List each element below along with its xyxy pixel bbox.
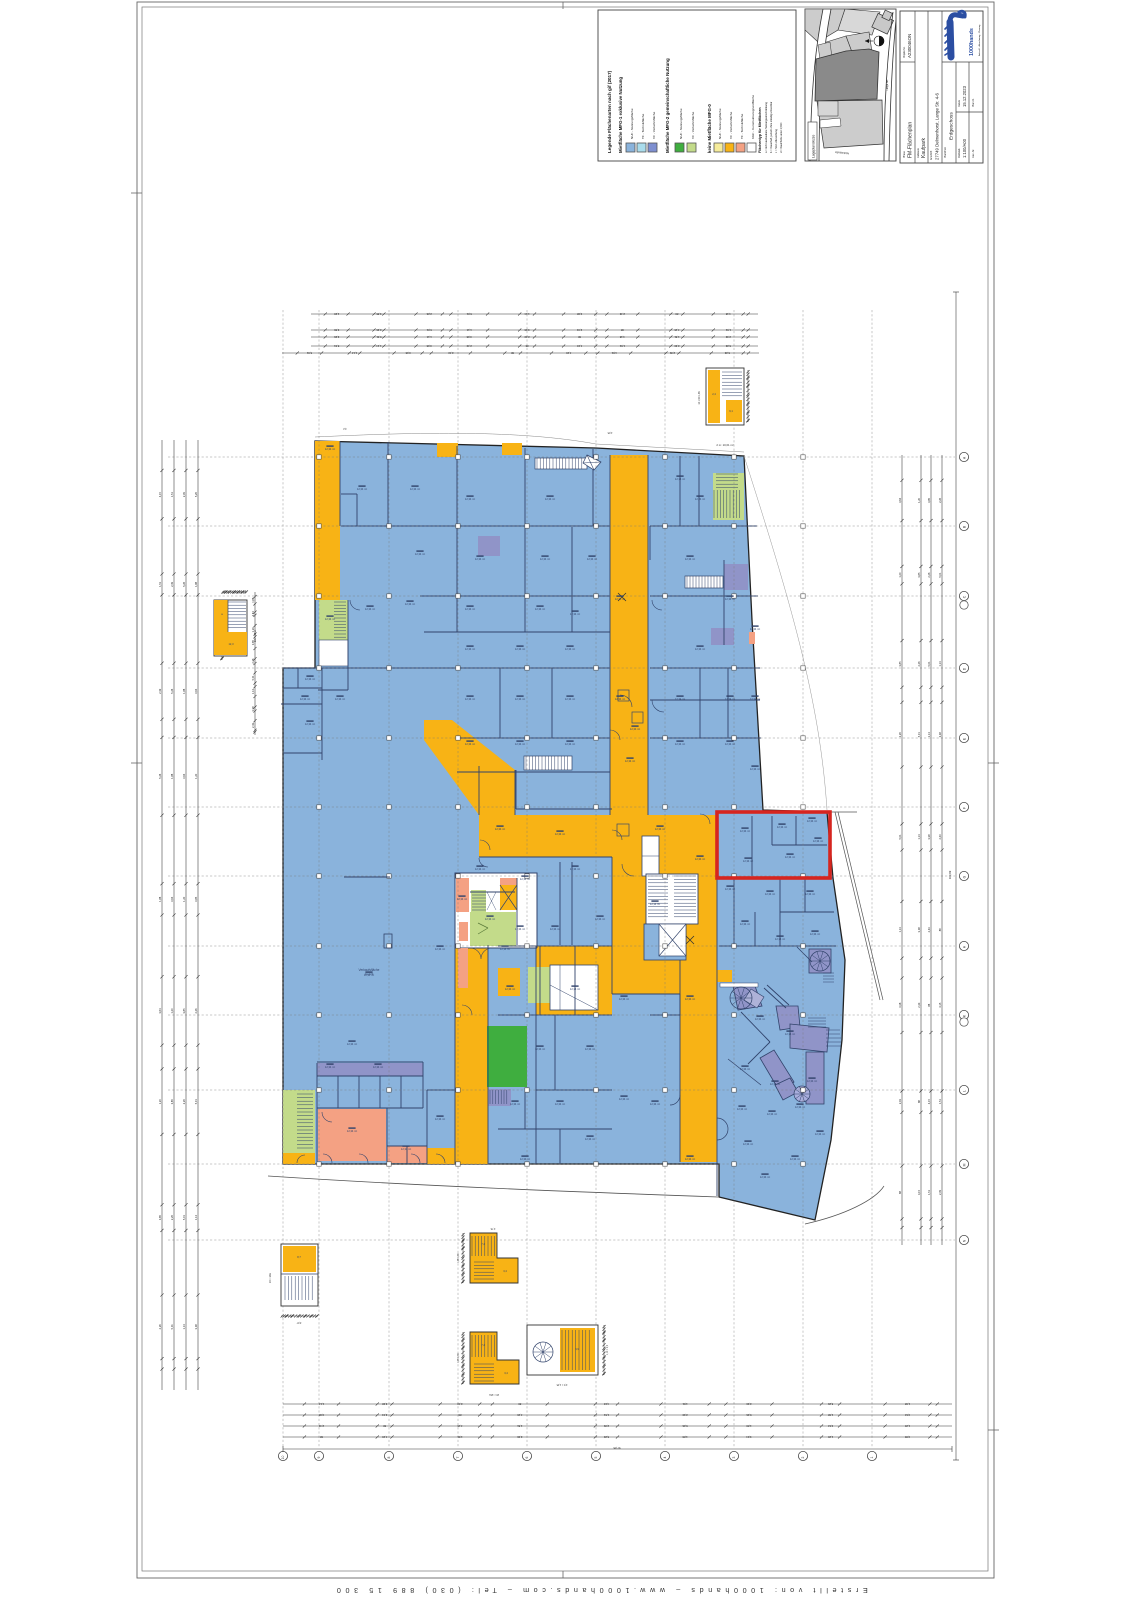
svg-text:9,1: 9,1 — [729, 409, 733, 413]
svg-text:12,34 m²: 12,34 m² — [743, 1142, 753, 1146]
svg-text:15.12.2023: 15.12.2023 — [962, 85, 967, 107]
svg-text:12,34 m²: 12,34 m² — [500, 947, 510, 951]
svg-text:1,20: 1,20 — [828, 1435, 834, 1439]
svg-text:12,34 m²: 12,34 m² — [300, 697, 310, 701]
svg-text:12,34 m²: 12,34 m² — [777, 825, 787, 829]
svg-text:3,64: 3,64 — [158, 1008, 162, 1014]
svg-text:3,38: 3,38 — [927, 834, 931, 840]
svg-text:2,43: 2,43 — [466, 344, 472, 348]
svg-text:3,64: 3,64 — [904, 1413, 910, 1417]
svg-text:4,15: 4,15 — [566, 351, 572, 355]
svg-text:2,26: 2,26 — [898, 732, 902, 738]
svg-text:5,01: 5,01 — [898, 834, 902, 840]
svg-text:12,34 m²: 12,34 m² — [405, 602, 415, 606]
svg-text:Mietfläche MFG-2 gemeinschaftl: Mietfläche MFG-2 gemeinschaftliche Nutzu… — [665, 58, 670, 153]
svg-text:2,26: 2,26 — [170, 1215, 174, 1221]
svg-text:3,38: 3,38 — [194, 1324, 198, 1330]
svg-text:5,26: 5,26 — [725, 344, 731, 348]
svg-text:7: 7 — [456, 1456, 460, 1458]
svg-text:12,34 m²: 12,34 m² — [760, 1175, 770, 1179]
svg-text:1,20: 1,20 — [917, 497, 921, 503]
svg-text:12,34 m²: 12,34 m² — [485, 917, 495, 921]
svg-text:4,15: 4,15 — [457, 1424, 463, 1428]
svg-text:2,43: 2,43 — [251, 722, 255, 728]
svg-text:12,34 m²: 12,34 m² — [415, 552, 425, 556]
svg-text:1,20: 1,20 — [194, 773, 198, 779]
svg-text:12,34 m²: 12,34 m² — [685, 557, 695, 561]
svg-text:3,38: 3,38 — [577, 312, 583, 316]
svg-text:9,9: 9,9 — [575, 1347, 579, 1351]
svg-text:b = Dauerhaft, jedoch ohne stä: b = Dauerhaft, jedoch ohne ständig umset… — [770, 101, 773, 153]
svg-text:12,34 m²: 12,34 m² — [535, 607, 545, 611]
svg-text:8,7: 8,7 — [297, 1255, 301, 1259]
svg-text:1,88: 1,88 — [158, 896, 162, 902]
svg-text:12,34 m²: 12,34 m² — [740, 829, 750, 833]
svg-text:12,34 m²: 12,34 m² — [625, 759, 635, 763]
svg-text:1,51: 1,51 — [938, 1099, 942, 1105]
svg-text:4,05: 4,05 — [607, 431, 612, 434]
svg-text:3,85: 3,85 — [158, 1215, 162, 1221]
svg-text:12,34 m²: 12,34 m² — [775, 937, 785, 941]
svg-text:12,34 m²: 12,34 m² — [305, 722, 315, 726]
svg-text:12,34 m²: 12,34 m² — [520, 1157, 530, 1161]
svg-text:2,43: 2,43 — [917, 1002, 921, 1008]
svg-text:4,15: 4,15 — [674, 328, 680, 332]
svg-text:12,34 m²: 12,34 m² — [770, 1082, 780, 1086]
svg-text:5,01: 5,01 — [334, 344, 340, 348]
svg-text:12,34 m²: 12,34 m² — [457, 897, 467, 901]
svg-text:VF - Verkehrsfläche: VF - Verkehrsfläche — [729, 112, 733, 139]
svg-text:2,26: 2,26 — [917, 661, 921, 667]
svg-text:F: F — [963, 807, 967, 809]
svg-text:12,34 m²: 12,34 m² — [615, 597, 625, 601]
svg-text:3,64: 3,64 — [251, 611, 255, 617]
svg-text:4,15: 4,15 — [917, 1189, 921, 1195]
svg-text:Anschrift: Anschrift — [930, 150, 933, 160]
svg-text:12,34 m²: 12,34 m² — [510, 1102, 520, 1106]
svg-text:12,34 m²: 12,34 m² — [515, 647, 525, 651]
svg-text:1,51: 1,51 — [517, 1424, 523, 1428]
svg-text:2,39: 2,39 — [674, 344, 680, 348]
svg-text:1,51: 1,51 — [619, 344, 625, 348]
svg-text:M: M — [963, 1163, 967, 1166]
svg-text:5,01: 5,01 — [426, 328, 432, 332]
svg-text:3: 3 — [732, 1456, 736, 1458]
svg-text:3,85: 3,85 — [904, 1435, 910, 1439]
svg-text:A230046ON: A230046ON — [907, 34, 912, 58]
svg-text:2,39: 2,39 — [517, 1435, 523, 1439]
svg-text:12,34 m²: 12,34 m² — [815, 1132, 825, 1136]
svg-text:2,39: 2,39 — [669, 351, 675, 355]
svg-text:1,20: 1,20 — [158, 1099, 162, 1105]
svg-text:3,38: 3,38 — [382, 1402, 388, 1406]
svg-text:3,38: 3,38 — [938, 732, 942, 738]
svg-text:12,34 m²: 12,34 m² — [685, 997, 695, 1001]
svg-text:Lange Str.: Lange Str. — [886, 79, 889, 90]
svg-text:5,01: 5,01 — [251, 675, 255, 681]
svg-text:3,64: 3,64 — [194, 688, 198, 694]
svg-text:3,85: 3,85 — [194, 896, 198, 902]
svg-text:12,34 m²: 12,34 m² — [555, 832, 565, 836]
svg-text:12,34 m²: 12,34 m² — [475, 867, 485, 871]
svg-text:2,26: 2,26 — [251, 658, 255, 664]
svg-text:12,34 m²: 12,34 m² — [565, 742, 575, 746]
svg-text:4,15: 4,15 — [158, 492, 162, 498]
svg-text:3,4: 3,4 — [504, 1371, 508, 1375]
svg-text:1,20: 1,20 — [170, 1008, 174, 1014]
svg-text:7,2: 7,2 — [481, 1343, 485, 1347]
svg-text:1,88: 1,88 — [194, 581, 198, 587]
svg-text:1,20: 1,20 — [334, 312, 340, 316]
svg-text:12,34 m²: 12,34 m² — [540, 557, 550, 561]
svg-text:5,01: 5,01 — [917, 732, 921, 738]
svg-text:1,14: 1,14 — [898, 927, 902, 933]
svg-text:12,34 m²: 12,34 m² — [515, 742, 525, 746]
svg-text:Kaufpark: Kaufpark — [921, 137, 927, 158]
svg-text:12,34 m²: 12,34 m² — [357, 487, 367, 491]
svg-text:VF - Verkehrsfläche: VF - Verkehrsfläche — [691, 112, 695, 139]
svg-text:12,34 m²: 12,34 m² — [465, 497, 475, 501]
svg-text:1,45 1,80: 1,45 1,80 — [458, 1252, 460, 1262]
svg-text:Erstellt von: 1000hands –: Erstellt von: 1000hands – www.1000hands.… — [332, 1586, 867, 1595]
svg-text:1,10 × 2,0: 1,10 × 2,0 — [606, 1344, 609, 1355]
svg-text:12,34 m²: 12,34 m² — [807, 1079, 817, 1083]
svg-text:12,34 m²: 12,34 m² — [767, 1112, 777, 1116]
svg-text:Gebäude: Gebäude — [917, 147, 920, 158]
svg-text:3,85: 3,85 — [170, 1099, 174, 1105]
svg-text:12,34 m²: 12,34 m² — [555, 1102, 565, 1106]
svg-text:2,39: 2,39 — [603, 1424, 609, 1428]
svg-text:12,34 m²: 12,34 m² — [570, 987, 580, 991]
svg-text:2,39: 2,39 — [170, 581, 174, 587]
svg-text:12,34 m²: 12,34 m² — [515, 697, 525, 701]
svg-text:1,14: 1,14 — [351, 351, 357, 355]
svg-text:12,34 m²: 12,34 m² — [630, 727, 640, 731]
svg-text:3,07: 3,07 — [296, 1321, 301, 1324]
svg-text:1,51: 1,51 — [927, 1189, 931, 1195]
svg-text:4,15: 4,15 — [577, 344, 583, 348]
svg-text:5,01: 5,01 — [182, 1215, 186, 1221]
svg-text:5,26: 5,26 — [746, 1413, 752, 1417]
svg-text:12,3: 12,3 — [228, 642, 234, 646]
svg-text:12,34 m²: 12,34 m² — [365, 607, 375, 611]
svg-text:1,20: 1,20 — [182, 896, 186, 902]
svg-text:Aufmaß · Abrechnung · Planung: Aufmaß · Abrechnung · Planung — [978, 24, 981, 56]
svg-text:5,01: 5,01 — [938, 572, 942, 578]
svg-text:1: 1 — [870, 1456, 874, 1458]
svg-text:3,38: 3,38 — [466, 335, 472, 339]
svg-text:1,14: 1,14 — [466, 328, 472, 332]
svg-text:2,26: 2,26 — [194, 1008, 198, 1014]
svg-text:1,51: 1,51 — [682, 1402, 688, 1406]
svg-text:4,15: 4,15 — [927, 1099, 931, 1105]
svg-text:01.023: 01.023 — [365, 972, 374, 976]
svg-text:4,15: 4,15 — [603, 1402, 609, 1406]
svg-text:FM-Flächenplan: FM-Flächenplan — [908, 122, 914, 158]
svg-text:12,34 m²: 12,34 m² — [750, 697, 760, 701]
svg-text:12,34 m²: 12,34 m² — [465, 697, 475, 701]
svg-text:2,26: 2,26 — [426, 312, 432, 316]
svg-text:Legende Flächenarten nach gif: Legende Flächenarten nach gif (2017) — [607, 70, 612, 153]
svg-text:1,88: 1,88 — [746, 1424, 752, 1428]
svg-text:12,34 m²: 12,34 m² — [570, 867, 580, 871]
svg-text:1,51: 1,51 — [611, 351, 617, 355]
svg-text:12,34 m²: 12,34 m² — [725, 697, 735, 701]
svg-text:1,88: 1,88 — [682, 1435, 688, 1439]
svg-text:2 m: 10,01 m²: 2 m: 10,01 m² — [716, 443, 733, 447]
svg-text:5: 5 — [594, 1456, 598, 1458]
svg-text:1,45 1,80: 1,45 1,80 — [458, 1352, 460, 1362]
svg-text:12,34 m²: 12,34 m² — [740, 922, 750, 926]
svg-text:2,39: 2,39 — [682, 1413, 688, 1417]
svg-text:12,34 m²: 12,34 m² — [535, 1047, 545, 1051]
svg-text:1,14: 1,14 — [376, 344, 382, 348]
svg-text:12,34 m²: 12,34 m² — [725, 597, 735, 601]
svg-text:2,39: 2,39 — [725, 335, 731, 339]
svg-text:1,14: 1,14 — [524, 312, 530, 316]
svg-text:12,34 m²: 12,34 m² — [401, 1147, 411, 1151]
svg-text:NUF - Nutzungsfläche: NUF - Nutzungsfläche — [679, 108, 683, 139]
svg-text:12,34 m²: 12,34 m² — [585, 1137, 595, 1141]
svg-text:5,26: 5,26 — [828, 1402, 834, 1406]
svg-text:3,85: 3,85 — [334, 328, 340, 332]
svg-text:1:100/A00: 1:100/A00 — [962, 138, 967, 158]
svg-text:12,34 m²: 12,34 m² — [743, 859, 753, 863]
svg-text:1,51: 1,51 — [170, 492, 174, 498]
svg-text:12,34 m²: 12,34 m² — [619, 1097, 629, 1101]
svg-text:12,34 m²: 12,34 m² — [750, 767, 760, 771]
svg-text:3,4: 3,4 — [503, 1269, 507, 1273]
svg-text:1,88: 1,88 — [170, 773, 174, 779]
svg-text:1,14: 1,14 — [182, 1324, 186, 1330]
svg-text:1,88: 1,88 — [182, 688, 186, 694]
svg-text:12,34 m²: 12,34 m² — [595, 917, 605, 921]
svg-text:2,39: 2,39 — [746, 1402, 752, 1406]
svg-text:5,01: 5,01 — [170, 1324, 174, 1330]
svg-text:12,34 m²: 12,34 m² — [545, 497, 555, 501]
svg-text:12,34 m²: 12,34 m² — [650, 902, 660, 906]
svg-text:4,15: 4,15 — [382, 1435, 388, 1439]
svg-text:3,85: 3,85 — [917, 572, 921, 578]
svg-text:2,26: 2,26 — [182, 1099, 186, 1105]
svg-text:a = nicht ausbaubare Nutzungse: a = nicht ausbaubare Nutzungseinschränku… — [765, 101, 768, 153]
svg-text:20 × 18m: 20 × 18m — [489, 1393, 499, 1396]
svg-text:12,34 m²: 12,34 m² — [505, 987, 515, 991]
svg-text:L: L — [963, 1090, 967, 1092]
svg-text:5,26: 5,26 — [194, 492, 198, 498]
svg-text:12,34 m²: 12,34 m² — [725, 887, 735, 891]
svg-text:1,14: 1,14 — [917, 834, 921, 840]
svg-text:Datum: Datum — [958, 100, 961, 107]
svg-text:6: 6 — [525, 1456, 529, 1458]
svg-text:12,34 m²: 12,34 m² — [515, 927, 525, 931]
svg-text:12,34 m²: 12,34 m² — [550, 927, 560, 931]
svg-text:12,34 m²: 12,34 m² — [725, 742, 735, 746]
svg-text:12,34 m²: 12,34 m² — [565, 647, 575, 651]
svg-text:3,38: 3,38 — [898, 1002, 902, 1008]
svg-text:12,34 m²: 12,34 m² — [347, 1042, 357, 1046]
svg-text:12,34 m²: 12,34 m² — [465, 742, 475, 746]
svg-text:12,34 m²: 12,34 m² — [410, 487, 420, 491]
svg-text:12,34 m²: 12,34 m² — [435, 947, 445, 951]
svg-text:7,2: 7,2 — [481, 1242, 485, 1246]
svg-text:12,34 m²: 12,34 m² — [675, 477, 685, 481]
svg-text:12,34 m²: 12,34 m² — [325, 447, 335, 451]
svg-text:2,43: 2,43 — [382, 1413, 388, 1417]
svg-text:2,43: 2,43 — [927, 927, 931, 933]
svg-text:G: G — [963, 875, 967, 878]
svg-text:12,34 m²: 12,34 m² — [785, 855, 795, 859]
svg-text:12,34 m²: 12,34 m² — [347, 1129, 357, 1133]
svg-text:3,64: 3,64 — [898, 497, 902, 503]
svg-text:3,38: 3,38 — [251, 706, 255, 712]
svg-text:57,85: 57,85 — [613, 1446, 620, 1450]
svg-text:Projekt-Nr.: Projekt-Nr. — [903, 46, 906, 58]
svg-text:2,4: 2,4 — [712, 392, 716, 396]
svg-text:12,34 m²: 12,34 m² — [807, 819, 817, 823]
svg-text:2,26: 2,26 — [927, 572, 931, 578]
svg-text:12,34 m²: 12,34 m² — [587, 557, 597, 561]
svg-text:12,34 m²: 12,34 m² — [520, 877, 530, 881]
svg-text:12,34 m²: 12,34 m² — [373, 1065, 383, 1069]
svg-text:27749 Delmenhorst, Lange Str.: 27749 Delmenhorst, Lange Str. 4-6 — [935, 93, 940, 160]
svg-text:12,34 m²: 12,34 m² — [785, 1032, 795, 1036]
svg-text:12,34 m²: 12,34 m² — [737, 1107, 747, 1111]
svg-text:1,20: 1,20 — [898, 572, 902, 578]
svg-text:12,34 m²: 12,34 m² — [585, 1047, 595, 1051]
svg-text:12,34 m²: 12,34 m² — [650, 1102, 660, 1106]
svg-text:4,15: 4,15 — [725, 312, 731, 316]
svg-text:4,15: 4,15 — [517, 1413, 523, 1417]
svg-text:2: 2 — [801, 1456, 805, 1458]
svg-text:3,38: 3,38 — [524, 328, 530, 332]
svg-text:3,64: 3,64 — [182, 773, 186, 779]
svg-text:3,64: 3,64 — [746, 1435, 752, 1439]
svg-text:KGF - Konstruktionsgrundfläche: KGF - Konstruktionsgrundfläche — [751, 95, 755, 139]
svg-text:12,34 m²: 12,34 m² — [765, 892, 775, 896]
svg-text:EG ↑ 18 st: EG ↑ 18 st — [253, 630, 257, 642]
svg-text:5,26: 5,26 — [682, 1424, 688, 1428]
svg-text:c = NGF-Abweichung: c = NGF-Abweichung — [775, 129, 778, 153]
svg-text:2,43: 2,43 — [619, 312, 625, 316]
svg-text:NUF - Nutzungsfläche: NUF - Nutzungsfläche — [718, 108, 722, 139]
svg-text:2,5 × 1,35: 2,5 × 1,35 — [556, 1383, 567, 1386]
svg-text:12,34 m²: 12,34 m² — [675, 697, 685, 701]
svg-text:3,85: 3,85 — [927, 497, 931, 503]
svg-text:12,34 m²: 12,34 m² — [790, 1157, 800, 1161]
svg-text:8: 8 — [387, 1456, 391, 1458]
svg-text:1,88: 1,88 — [904, 1402, 910, 1406]
svg-text:2,39: 2,39 — [938, 1189, 942, 1195]
svg-text:12,34 m²: 12,34 m² — [565, 697, 575, 701]
svg-text:5,01: 5,01 — [466, 312, 472, 316]
svg-text:2,43: 2,43 — [457, 1402, 463, 1406]
svg-text:1,51: 1,51 — [457, 1435, 463, 1439]
svg-text:Planinhalt: Planinhalt — [944, 147, 947, 158]
svg-text:2,43: 2,43 — [524, 335, 530, 339]
svg-text:3,64: 3,64 — [828, 1424, 834, 1428]
svg-text:1,14: 1,14 — [194, 1215, 198, 1221]
svg-text:12,34 m²: 12,34 m² — [695, 647, 705, 651]
svg-text:12,34 m²: 12,34 m² — [335, 697, 345, 701]
svg-text:12,34 m²: 12,34 m² — [570, 612, 580, 616]
svg-text:Mietfläche MFG-1 exklusive Nut: Mietfläche MFG-1 exklusive Nutzung — [618, 77, 623, 153]
svg-text:2,26: 2,26 — [938, 497, 942, 503]
svg-text:keine Mietfläche MFG-0: keine Mietfläche MFG-0 — [707, 104, 712, 153]
svg-text:1,20: 1,20 — [904, 1424, 910, 1428]
svg-text:9: 9 — [317, 1456, 321, 1458]
svg-text:12,34 m²: 12,34 m² — [810, 932, 820, 936]
svg-text:12,34 m²: 12,34 m² — [615, 697, 625, 701]
svg-text:TF - Technikfläche: TF - Technikfläche — [641, 114, 645, 139]
svg-text:d = Raumhöhe unter 1,50m: d = Raumhöhe unter 1,50m — [780, 122, 783, 153]
svg-text:3,38: 3,38 — [917, 927, 921, 933]
svg-text:2,26: 2,26 — [376, 328, 382, 332]
svg-text:3,85: 3,85 — [898, 661, 902, 667]
svg-text:10 1,90 1,85: 10 1,90 1,85 — [698, 391, 701, 405]
svg-text:5,26: 5,26 — [170, 688, 174, 694]
svg-text:Lageplanskizze: Lageplanskizze — [812, 135, 816, 158]
svg-text:3,38: 3,38 — [426, 344, 432, 348]
svg-text:12,34 m²: 12,34 m² — [675, 742, 685, 746]
svg-text:1,51: 1,51 — [603, 1413, 609, 1417]
svg-text:4,15: 4,15 — [938, 1002, 942, 1008]
svg-text:12,34 m²: 12,34 m² — [685, 1157, 695, 1161]
svg-text:12,34 m²: 12,34 m² — [495, 827, 505, 831]
svg-text:3,85: 3,85 — [376, 312, 382, 316]
svg-text:12,34 m²: 12,34 m² — [475, 557, 485, 561]
svg-text:1,88: 1,88 — [828, 1413, 834, 1417]
svg-text:2,39: 2,39 — [158, 688, 162, 694]
svg-text:5,26: 5,26 — [182, 581, 186, 587]
svg-text:Flächentyp für Mietflächen: Flächentyp für Mietflächen — [758, 107, 762, 153]
svg-text:1,51: 1,51 — [725, 328, 731, 332]
svg-text:2,26: 2,26 — [158, 1324, 162, 1330]
svg-text:2,39: 2,39 — [182, 492, 186, 498]
svg-text:1,14: 1,14 — [426, 335, 432, 339]
svg-text:2,43: 2,43 — [938, 834, 942, 840]
svg-text:1,14: 1,14 — [318, 1402, 324, 1406]
svg-text:2,43: 2,43 — [898, 1099, 902, 1105]
svg-text:5,26: 5,26 — [724, 351, 730, 355]
svg-text:5,01: 5,01 — [194, 1099, 198, 1105]
svg-text:12,34 m²: 12,34 m² — [795, 1105, 805, 1109]
svg-text:VF - Verkehrsfläche: VF - Verkehrsfläche — [652, 112, 656, 139]
svg-text:Erdgeschoss: Erdgeschoss — [949, 112, 955, 140]
svg-text:Gez.-Nr.: Gez.-Nr. — [972, 149, 975, 158]
svg-text:5,26: 5,26 — [603, 1435, 609, 1439]
svg-text:12,34 m²: 12,34 m² — [695, 857, 705, 861]
svg-text:1,51: 1,51 — [158, 581, 162, 587]
svg-text:1,14: 1,14 — [251, 689, 255, 695]
svg-text:12,34 m²: 12,34 m² — [655, 827, 665, 831]
svg-text:10: 10 — [281, 1456, 285, 1460]
svg-text:3,64: 3,64 — [170, 896, 174, 902]
svg-text:12,34 m²: 12,34 m² — [435, 1117, 445, 1121]
svg-text:Plan-Nr.: Plan-Nr. — [972, 98, 975, 107]
svg-text:TF - Technikfläche: TF - Technikfläche — [740, 114, 744, 139]
svg-text:1000hands: 1000hands — [969, 28, 975, 56]
svg-text:2,43: 2,43 — [577, 328, 583, 332]
svg-text:2,76: 2,76 — [490, 1227, 495, 1230]
svg-text:Phase: Phase — [903, 151, 906, 158]
svg-text:5,26: 5,26 — [158, 773, 162, 779]
svg-text:103,99: 103,99 — [948, 870, 952, 879]
svg-text:5,01: 5,01 — [376, 335, 382, 339]
svg-text:2,43: 2,43 — [448, 351, 454, 355]
svg-text:3,38: 3,38 — [405, 351, 411, 355]
svg-text:4: 4 — [663, 1456, 667, 1458]
